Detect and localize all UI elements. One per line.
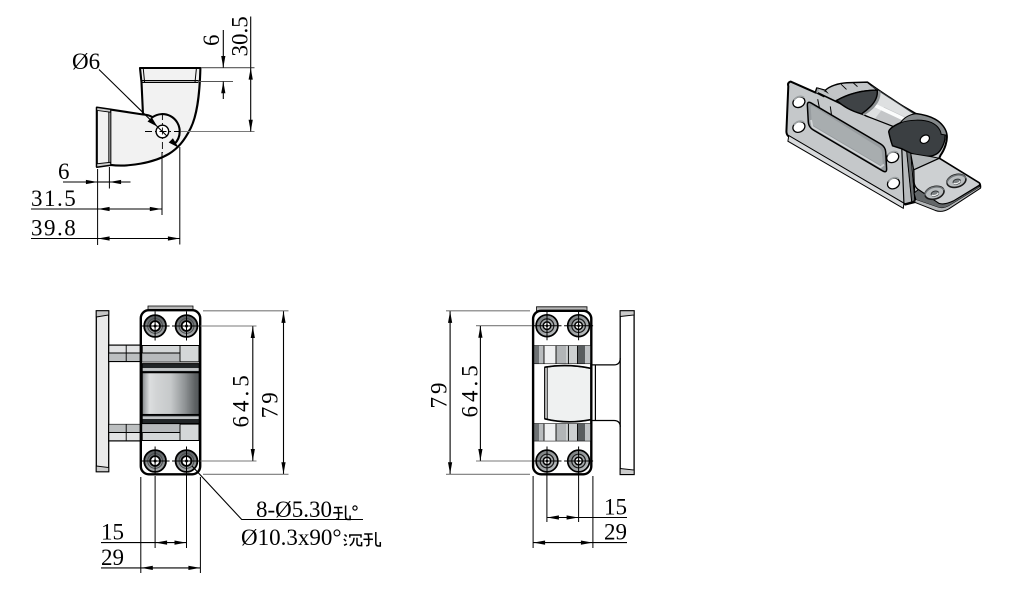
svg-text:8-Ø5.30: 8-Ø5.30 (256, 497, 332, 522)
svg-text:15: 15 (101, 520, 124, 545)
svg-text:29: 29 (604, 520, 627, 545)
svg-text:29: 29 (101, 545, 124, 570)
svg-text:39.8: 39.8 (31, 216, 77, 241)
svg-text:Ø6: Ø6 (72, 49, 100, 74)
svg-text:Ø10.3x90°: Ø10.3x90° (241, 525, 342, 550)
svg-text:30.5: 30.5 (228, 16, 253, 56)
svg-text:31.5: 31.5 (31, 186, 77, 211)
svg-text:64.5: 64.5 (229, 371, 254, 427)
svg-text:64.5: 64.5 (458, 361, 483, 417)
svg-text:79: 79 (258, 389, 283, 418)
svg-text:6: 6 (58, 159, 70, 184)
svg-text:79: 79 (427, 380, 452, 409)
svg-text:15: 15 (604, 495, 627, 520)
svg-text:6: 6 (199, 35, 224, 47)
